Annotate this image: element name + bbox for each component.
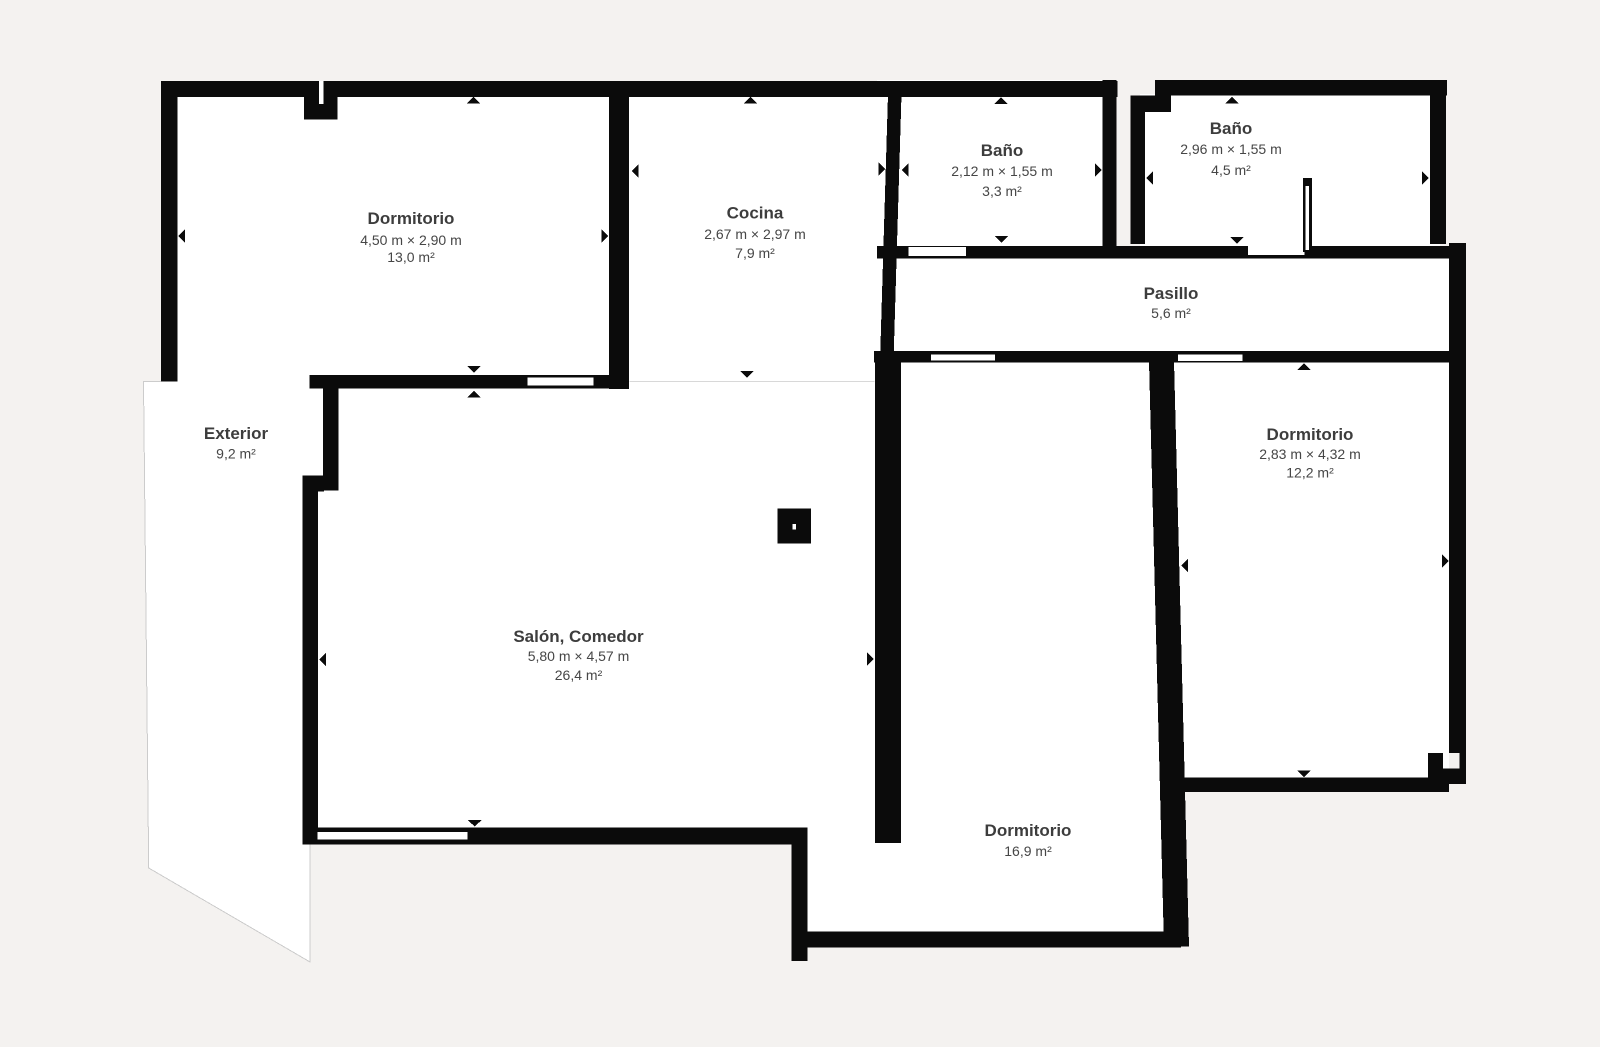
svg-text:Exterior: Exterior: [204, 424, 269, 443]
svg-text:Salón, Comedor: Salón, Comedor: [513, 627, 644, 646]
svg-text:26,4 m²: 26,4 m²: [555, 667, 603, 683]
svg-text:13,0 m²: 13,0 m²: [387, 249, 435, 265]
svg-text:Dormitorio: Dormitorio: [368, 209, 455, 228]
svg-text:9,2 m²: 9,2 m²: [216, 446, 256, 462]
svg-text:Dormitorio: Dormitorio: [985, 821, 1072, 840]
svg-text:Dormitorio: Dormitorio: [1267, 425, 1354, 444]
svg-text:2,83 m × 4,32 m: 2,83 m × 4,32 m: [1259, 446, 1361, 462]
svg-text:4,5 m²: 4,5 m²: [1211, 162, 1251, 178]
svg-text:3,3 m²: 3,3 m²: [982, 183, 1022, 199]
svg-text:12,2 m²: 12,2 m²: [1286, 465, 1334, 481]
svg-text:2,67 m × 2,97 m: 2,67 m × 2,97 m: [704, 226, 806, 242]
svg-text:Pasillo: Pasillo: [1144, 284, 1199, 303]
svg-text:7,9 m²: 7,9 m²: [735, 245, 775, 261]
svg-text:2,12 m × 1,55 m: 2,12 m × 1,55 m: [951, 163, 1053, 179]
svg-text:Baño: Baño: [1210, 119, 1253, 138]
svg-text:5,80 m × 4,57 m: 5,80 m × 4,57 m: [528, 648, 630, 664]
svg-text:4,50 m × 2,90 m: 4,50 m × 2,90 m: [360, 232, 462, 248]
svg-text:Baño: Baño: [981, 141, 1024, 160]
svg-text:5,6 m²: 5,6 m²: [1151, 305, 1191, 321]
svg-text:Cocina: Cocina: [727, 204, 784, 223]
svg-text:16,9 m²: 16,9 m²: [1004, 843, 1052, 859]
svg-text:2,96 m × 1,55 m: 2,96 m × 1,55 m: [1180, 141, 1282, 157]
